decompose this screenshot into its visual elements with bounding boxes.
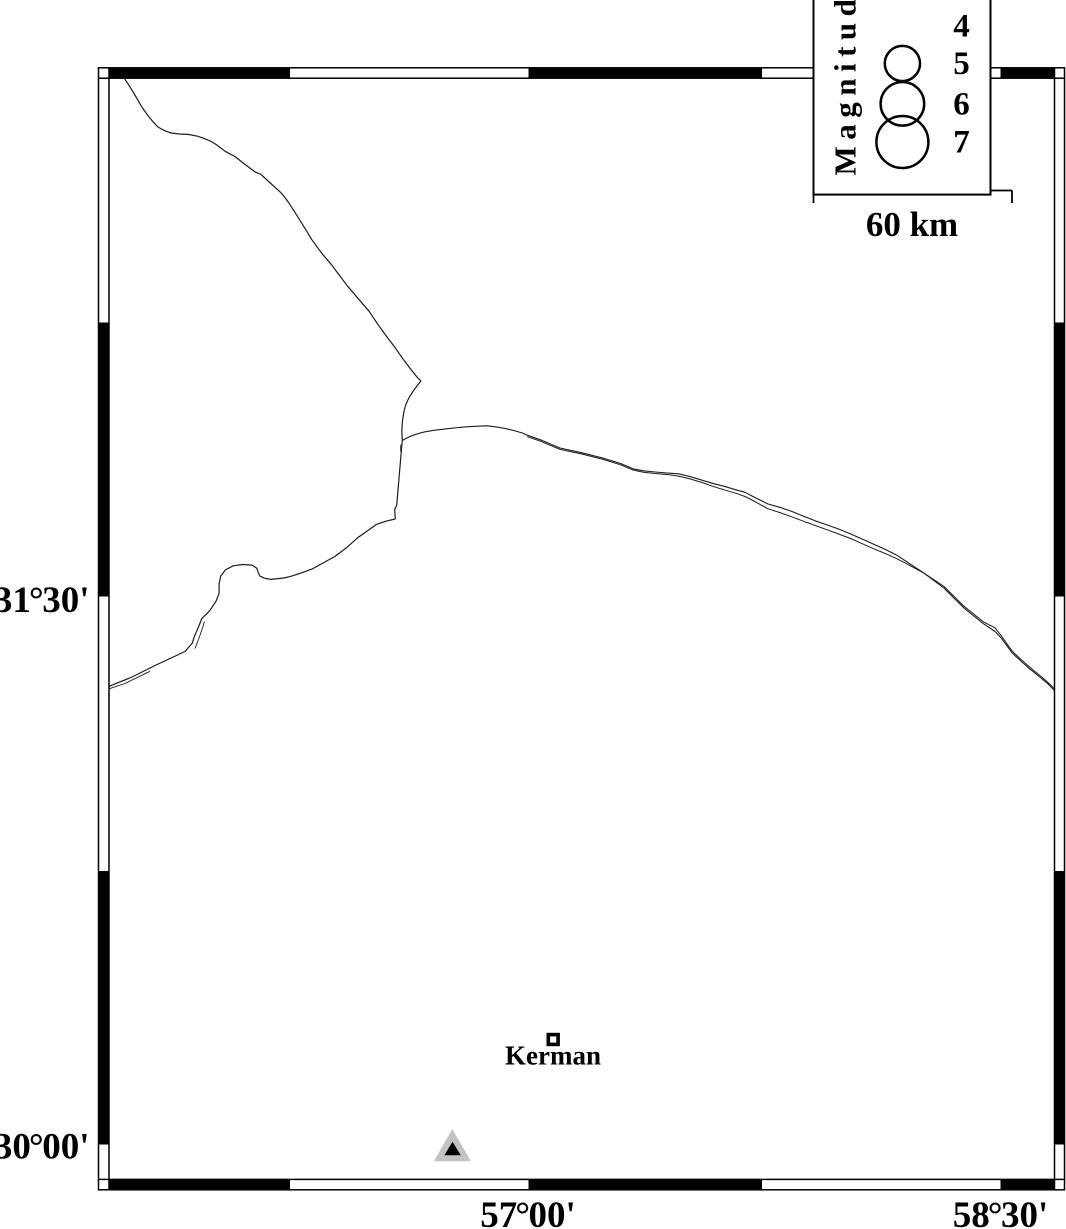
svg-text:31°30': 31°30' [0, 580, 90, 621]
svg-text:5: 5 [953, 46, 970, 82]
svg-text:57°00': 57°00' [480, 1195, 576, 1229]
svg-text:4: 4 [953, 9, 970, 45]
svg-text:30°00': 30°00' [0, 1127, 90, 1168]
svg-text:60 km: 60 km [866, 205, 958, 244]
svg-text:58°30': 58°30' [953, 1195, 1049, 1229]
svg-text:Magnitude: Magnitude [828, 0, 863, 176]
svg-text:7: 7 [953, 125, 970, 161]
svg-text:Kerman: Kerman [505, 1041, 601, 1071]
svg-text:6: 6 [953, 87, 970, 123]
